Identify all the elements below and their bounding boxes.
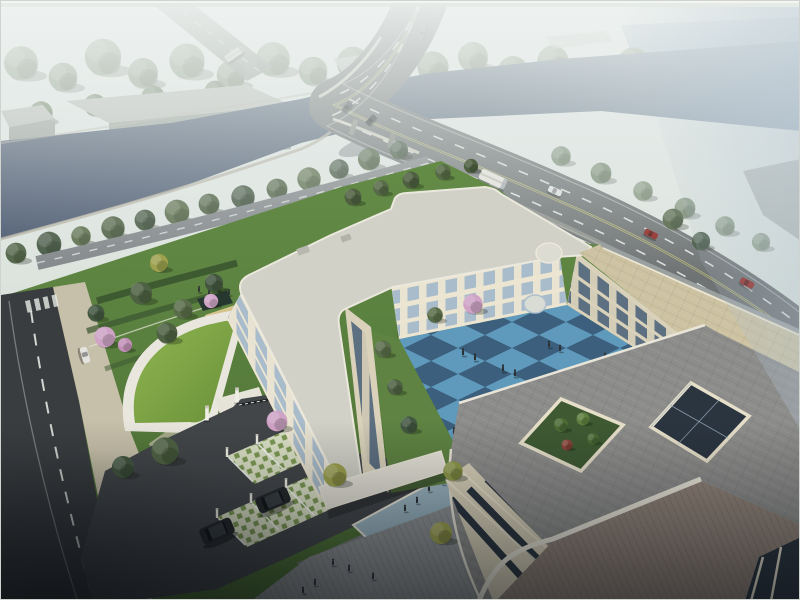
rendering-canvas — [1, 1, 800, 600]
architectural-rendering — [0, 0, 800, 600]
corner-tower — [536, 243, 562, 263]
stair-cylinder — [524, 295, 546, 313]
